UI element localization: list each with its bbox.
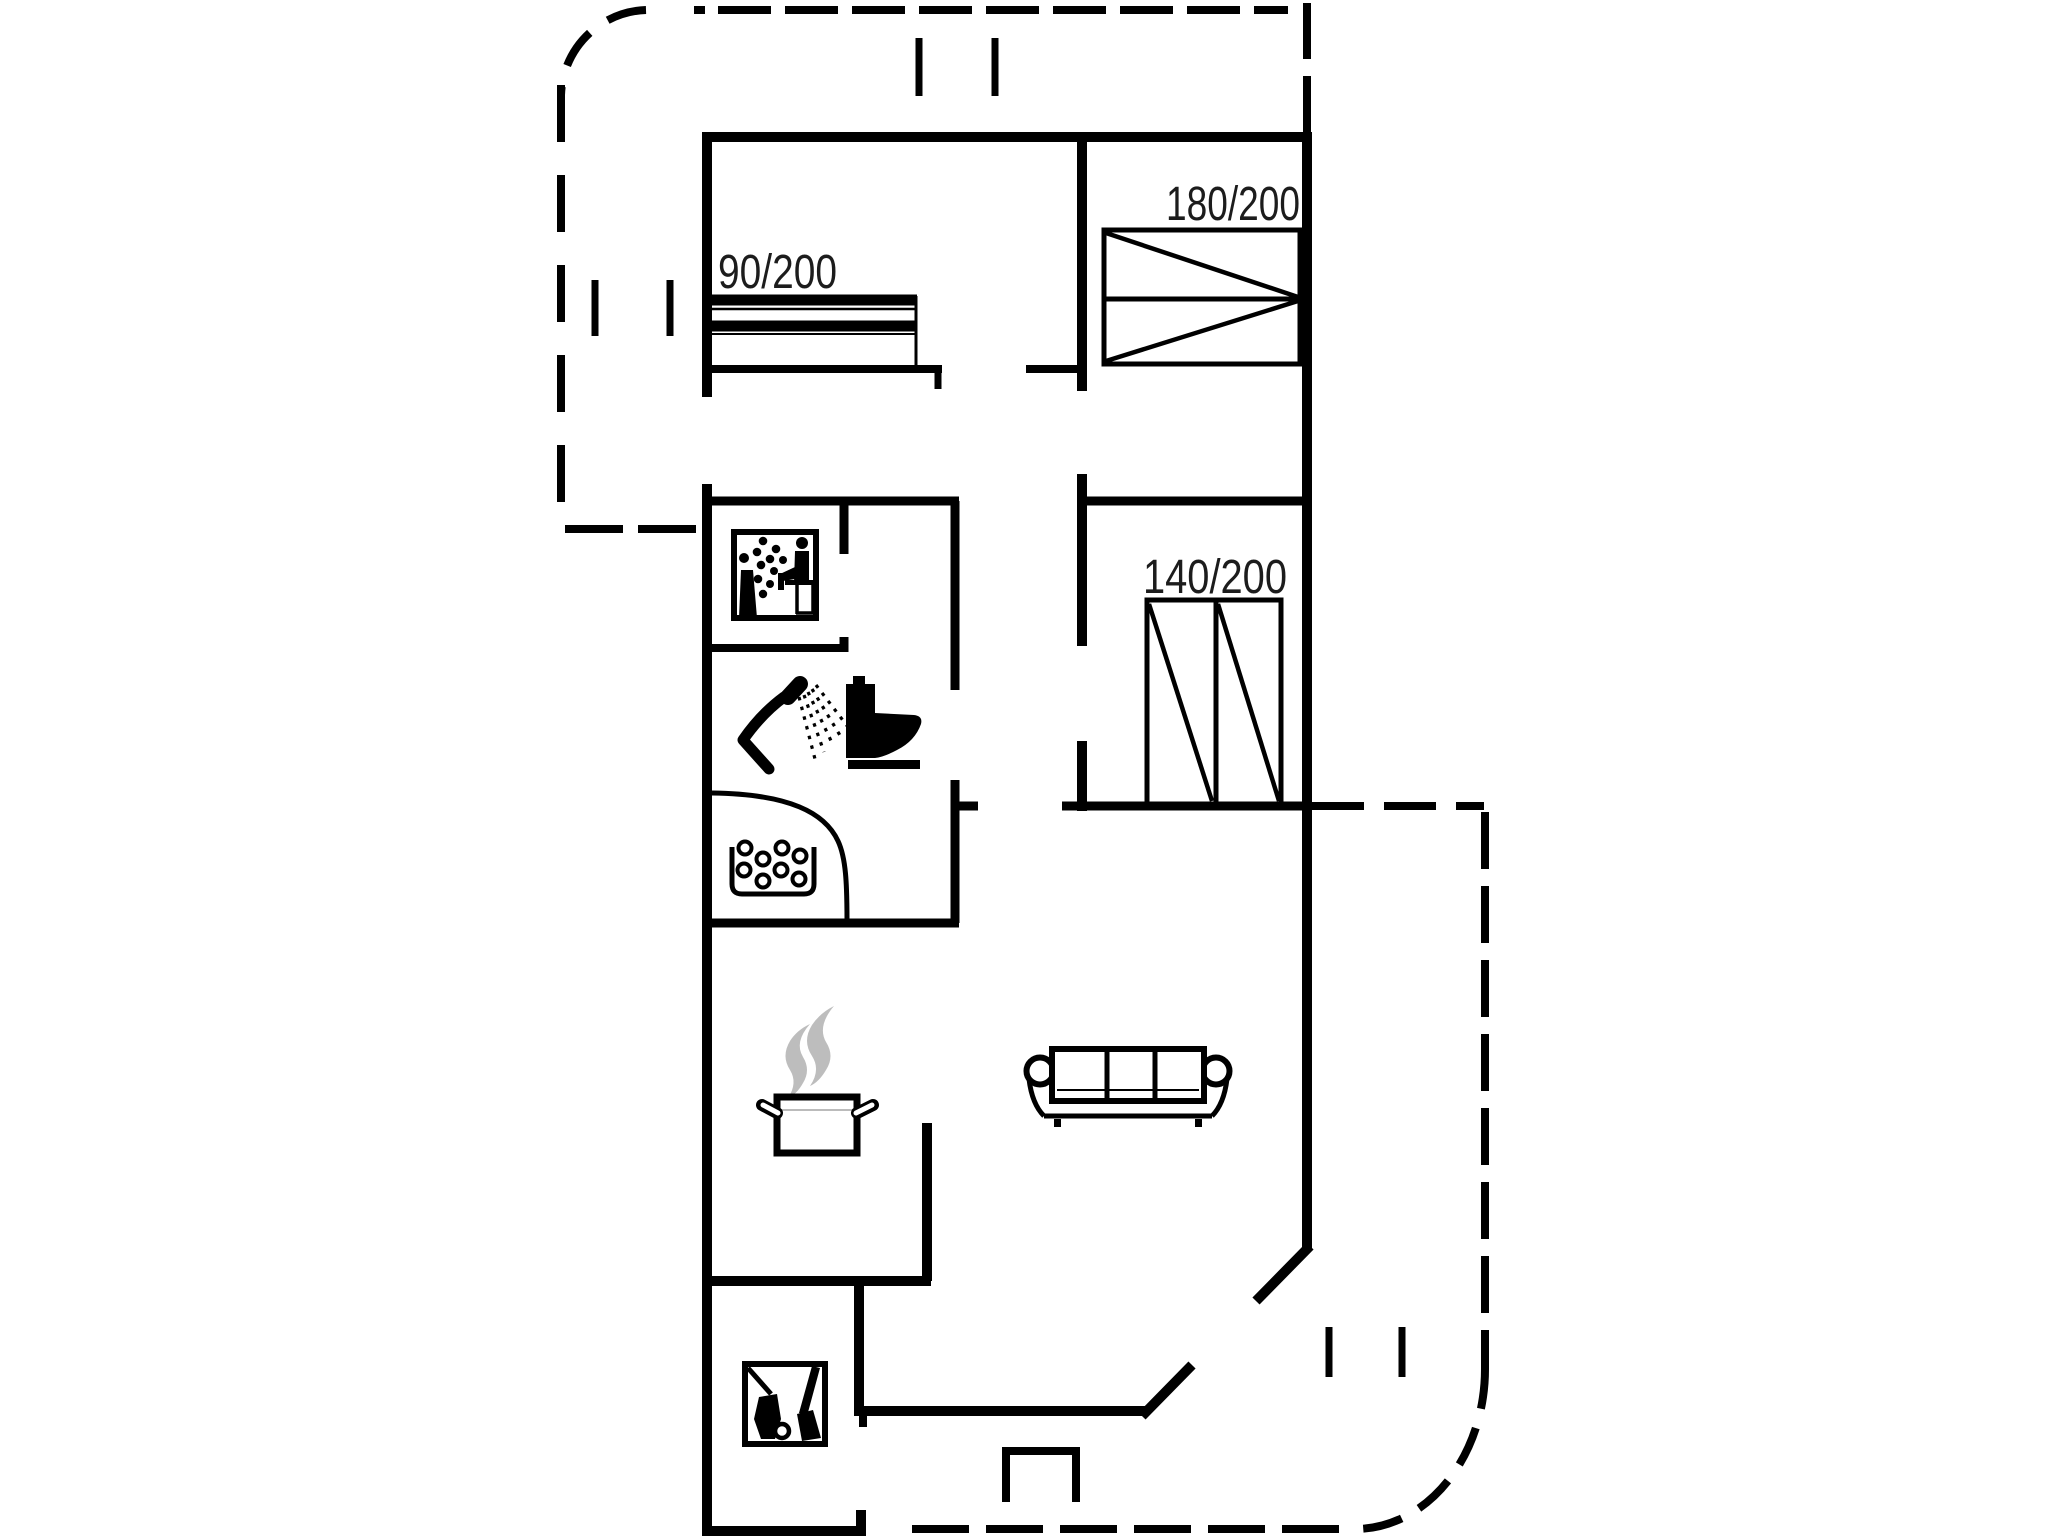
svg-text:140/200: 140/200 — [1143, 551, 1287, 604]
svg-text:90/200: 90/200 — [718, 246, 837, 299]
svg-text:180/200: 180/200 — [1166, 178, 1300, 231]
